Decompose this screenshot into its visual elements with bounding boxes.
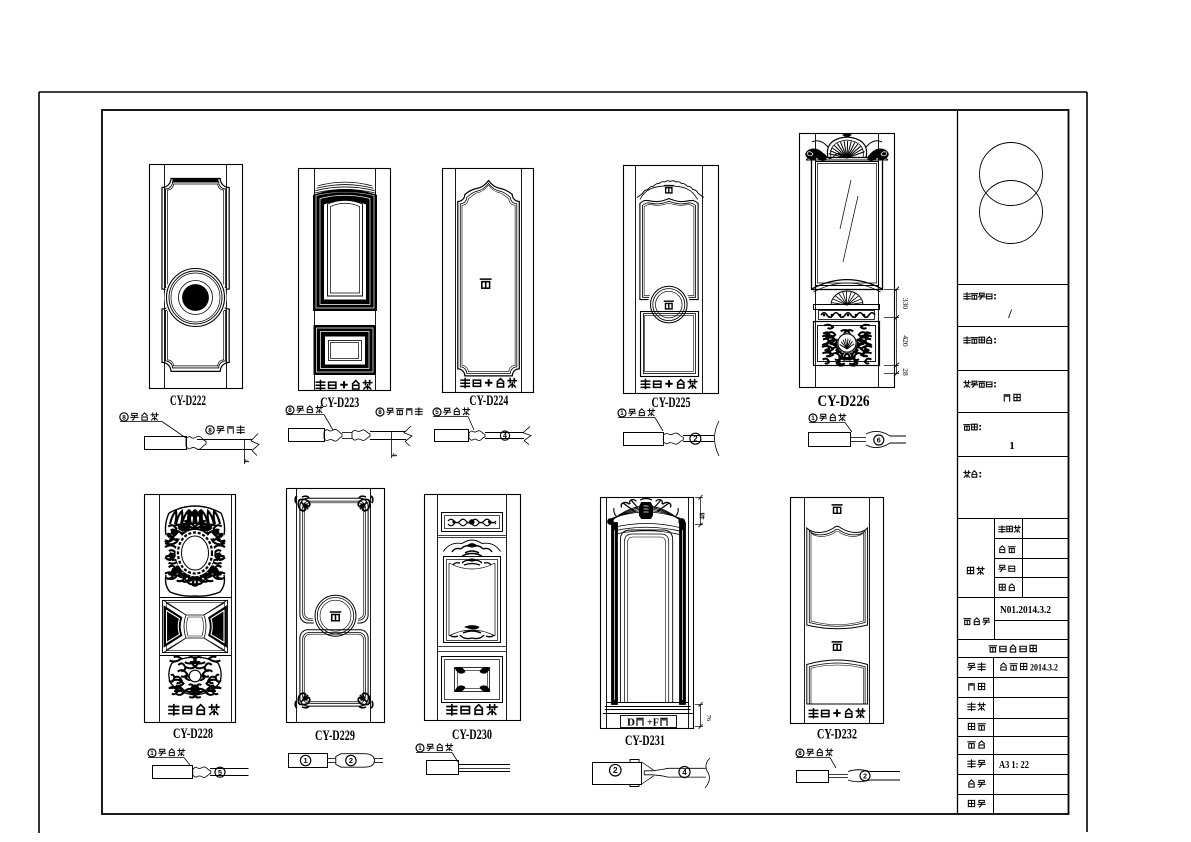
svg-text:CY-D230: CY-D230 [452,727,492,743]
svg-text:6: 6 [877,436,881,445]
svg-text:8: 8 [288,407,292,414]
svg-text:1: 1 [811,415,815,422]
svg-text:CY-D223: CY-D223 [320,395,359,411]
svg-text:5: 5 [218,768,222,777]
svg-text:CY-D228: CY-D228 [173,726,213,742]
svg-text:CY-D232: CY-D232 [817,727,857,743]
svg-text:48: 48 [699,512,707,520]
svg-text:76: 76 [705,715,712,722]
svg-text:4: 4 [682,768,687,777]
svg-text:8: 8 [122,414,126,421]
svg-text:CY-D224: CY-D224 [469,393,508,409]
svg-text:4: 4 [242,459,250,463]
svg-text:8: 8 [208,427,212,434]
svg-text:330: 330 [901,298,910,310]
svg-text:28: 28 [901,368,910,376]
svg-text:CY-D222: CY-D222 [170,393,206,409]
svg-text:/: / [1007,306,1012,321]
svg-text:N01.2014.3.2: N01.2014.3.2 [1000,605,1051,616]
svg-text:5: 5 [435,409,439,416]
svg-text:D: D [627,716,635,728]
svg-text:2: 2 [863,771,867,780]
svg-text:4: 4 [503,433,507,440]
svg-text:1: 1 [1009,440,1015,452]
svg-text:2: 2 [693,435,698,444]
svg-text:CY-D231: CY-D231 [625,733,665,749]
svg-text:1: 1 [150,750,154,757]
svg-text:CY-D225: CY-D225 [652,395,691,411]
svg-text:2014.3.2: 2014.3.2 [1030,664,1058,674]
svg-text:8: 8 [798,750,802,757]
svg-text:CY-D226: CY-D226 [818,393,870,410]
svg-text:2: 2 [349,756,353,765]
svg-text:1: 1 [620,410,624,417]
svg-text:1: 1 [418,745,422,752]
svg-text:CY-D229: CY-D229 [315,728,355,744]
svg-text:4: 4 [390,453,398,457]
svg-text:+F: +F [647,716,659,728]
svg-text:A3 1: 22: A3 1: 22 [999,760,1029,771]
svg-text:2: 2 [613,766,618,775]
svg-text:1: 1 [304,756,308,765]
svg-text:8: 8 [378,409,382,416]
svg-text:420: 420 [901,335,910,347]
